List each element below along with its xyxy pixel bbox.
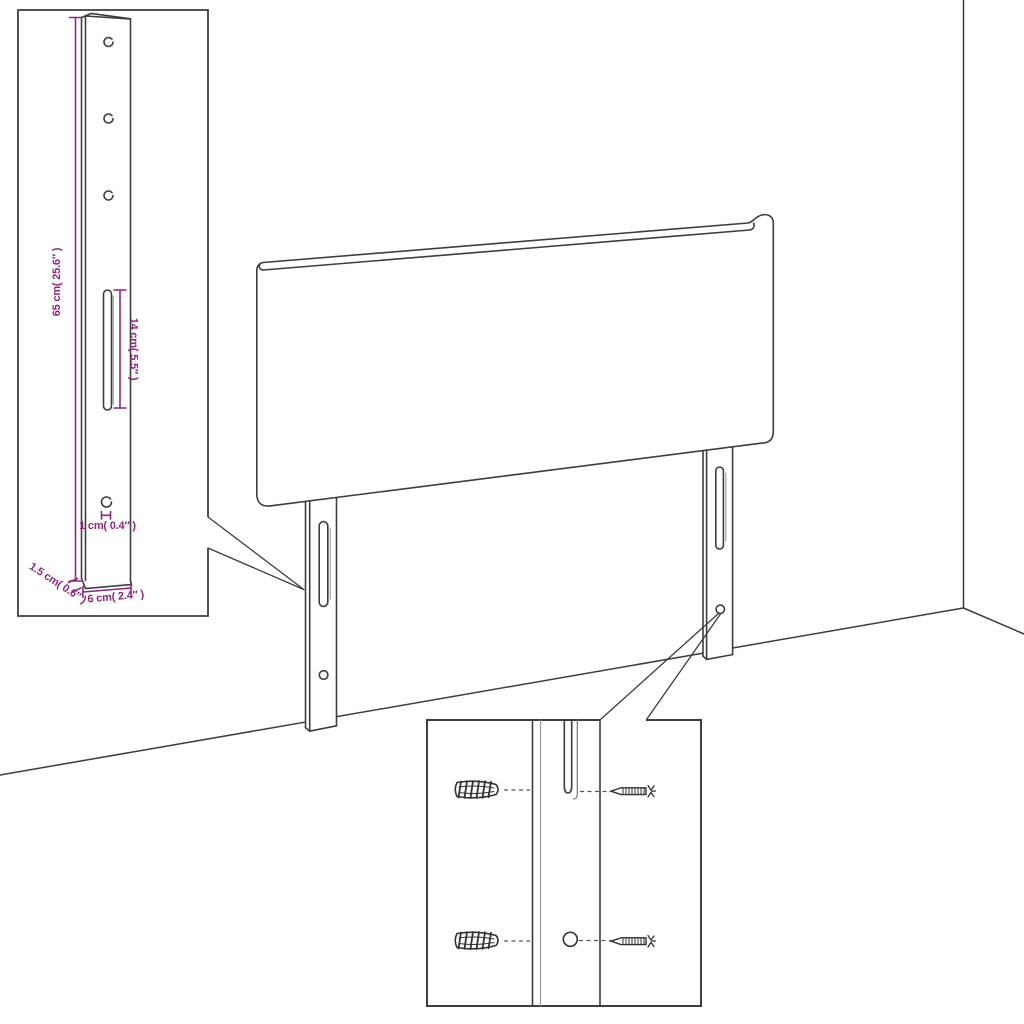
panel-outline bbox=[257, 215, 774, 506]
floor-line-right bbox=[964, 608, 1024, 634]
headboard-panel bbox=[257, 215, 774, 506]
product-dimension-diagram: 65 cm( 25.6″ ) 14 cm( 5.5″ ) 1 cm( 0.4″ … bbox=[0, 0, 1024, 1024]
leg-detail-inset: 65 cm( 25.6″ ) 14 cm( 5.5″ ) 1 cm( 0.4″ … bbox=[18, 10, 208, 616]
mounting-detail-inset bbox=[427, 720, 701, 1006]
leader-lines-left-inset bbox=[208, 517, 304, 590]
headboard-left-leg bbox=[306, 492, 337, 731]
headboard-right-leg bbox=[703, 433, 733, 659]
hole-dimension-label: 1 cm( 0.4″ ) bbox=[79, 520, 136, 532]
slot-dimension-label: 14 cm( 5.5″ ) bbox=[128, 318, 140, 381]
diagram-artwork: 65 cm( 25.6″ ) 14 cm( 5.5″ ) 1 cm( 0.4″ … bbox=[0, 0, 1024, 1024]
height-dimension-label: 65 cm( 25.6″ ) bbox=[51, 247, 63, 316]
